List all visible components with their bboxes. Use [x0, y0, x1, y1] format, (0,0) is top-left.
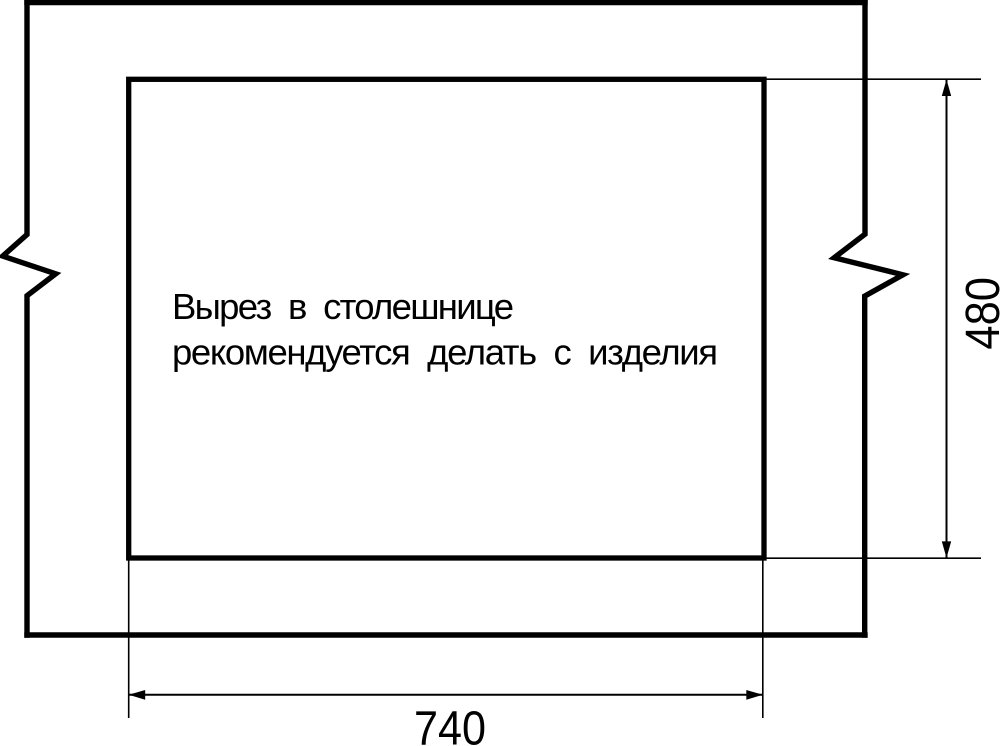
svg-text:740: 740 [414, 703, 486, 746]
svg-text:Вырез в столешнице: Вырез в столешнице [172, 286, 514, 327]
svg-text:рекомендуется делать с изделия: рекомендуется делать с изделия [172, 331, 718, 372]
svg-text:480: 480 [957, 277, 1000, 350]
